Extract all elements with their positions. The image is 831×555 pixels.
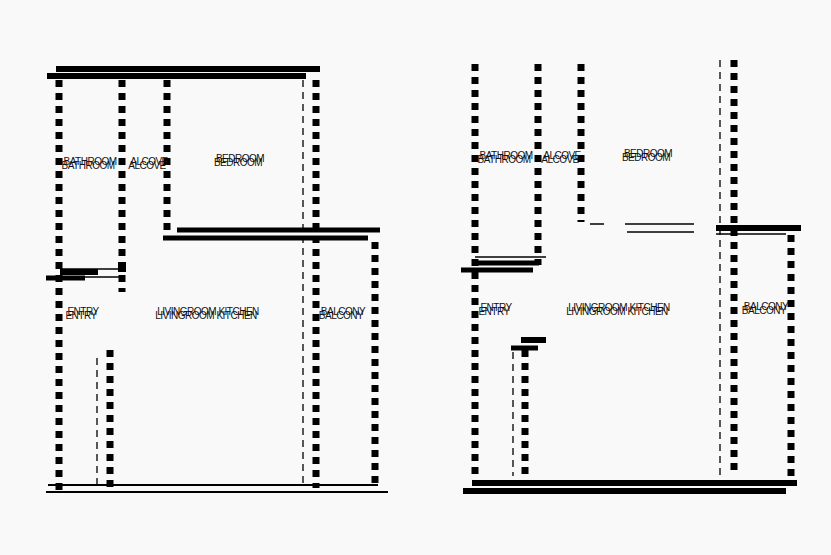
right-room-label-alcove: ALCOVEALCOVE: [541, 155, 579, 165]
room-label-text: LIVINGROOM KITCHEN: [155, 311, 257, 321]
left-room-label-living: LIVINGROOM KITCHENLIVINGROOM KITCHEN: [155, 311, 257, 321]
room-label-text: BALCONY: [742, 306, 786, 316]
left-room-label-alcove: ALCOVEALCOVE: [128, 161, 166, 171]
room-label-text: BEDROOM: [214, 158, 262, 168]
room-label-text: BATHROOM: [477, 155, 530, 165]
wall-cap: [118, 262, 126, 272]
room-label-text: ALCOVE: [128, 161, 166, 171]
room-label-text: ENTRY: [65, 311, 96, 321]
floorplan-drawing: [0, 0, 831, 555]
right-plan-walls: [461, 60, 801, 491]
floorplan-page: BATHROOMBATHROOM ALCOVEALCOVE BEDROOMBED…: [0, 0, 831, 555]
left-room-label-bedroom: BEDROOMBEDROOM: [214, 158, 262, 168]
right-room-label-living: LIVINGROOM KITCHENLIVINGROOM KITCHEN: [566, 307, 668, 317]
left-room-label-entry: ENTRYENTRY: [65, 311, 96, 321]
right-room-label-bedroom: BEDROOMBEDROOM: [622, 153, 670, 163]
room-label-text: BATHROOM: [61, 161, 114, 171]
left-plan-walls: [46, 69, 388, 492]
right-room-label-entry: ENTRYENTRY: [478, 307, 509, 317]
room-label-text: LIVINGROOM KITCHEN: [566, 307, 668, 317]
left-room-label-bathroom: BATHROOMBATHROOM: [61, 161, 114, 171]
room-label-text: BALCONY: [319, 311, 363, 321]
room-label-text: BEDROOM: [622, 153, 670, 163]
right-room-label-balcony: BALCONYBALCONY: [742, 306, 786, 316]
room-label-text: ENTRY: [478, 307, 509, 317]
room-label-text: ALCOVE: [541, 155, 579, 165]
left-room-label-balcony: BALCONYBALCONY: [319, 311, 363, 321]
right-room-label-bathroom: BATHROOMBATHROOM: [477, 155, 530, 165]
